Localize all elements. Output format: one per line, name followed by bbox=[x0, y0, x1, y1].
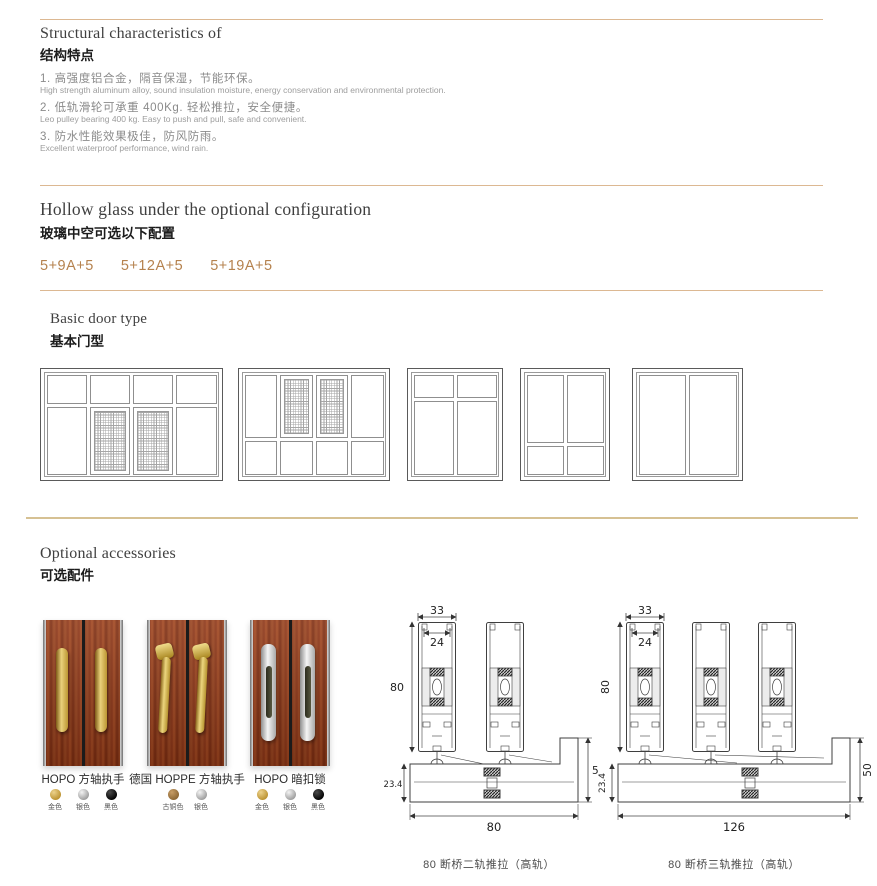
structural-item-3-en: Excellent waterproof performance, wind r… bbox=[40, 143, 208, 153]
door-panel bbox=[351, 441, 384, 475]
color-option: 金色 bbox=[45, 789, 65, 812]
door-panel bbox=[245, 441, 278, 475]
divider bbox=[40, 19, 823, 20]
color-option: 黑色 bbox=[101, 789, 121, 812]
door-frame bbox=[242, 372, 386, 477]
structural-item-2-cn: 2. 低轨滑轮可承重 400Kg. 轻松推拉，安全便捷。 bbox=[40, 99, 308, 115]
gold-swatch bbox=[257, 789, 268, 800]
glass-options: 5+9A+5 5+12A+5 5+19A+5 bbox=[40, 258, 273, 274]
door-seam bbox=[186, 620, 189, 766]
door-type-title-cn: 基本门型 bbox=[50, 330, 104, 350]
dim-top: 33 bbox=[430, 606, 444, 617]
dim-glass: 24 bbox=[430, 636, 444, 649]
panel-edge bbox=[147, 620, 150, 766]
black-swatch bbox=[313, 789, 324, 800]
lock-slot bbox=[305, 666, 311, 718]
door-panel bbox=[133, 375, 173, 404]
swatch-label: 古铜色 bbox=[163, 802, 184, 812]
structural-item-1-cn: 1. 高强度铝合金，隔音保湿，节能环保。 bbox=[40, 70, 260, 86]
color-option: 黑色 bbox=[308, 789, 328, 812]
dim-sill: 23.4 bbox=[384, 780, 402, 790]
dim-top: 33 bbox=[638, 606, 652, 617]
dim-width: 126 bbox=[723, 820, 745, 834]
profile-caption: 80 断桥三轨推拉（高轨） bbox=[644, 856, 824, 872]
color-option: 古铜色 bbox=[163, 789, 183, 812]
door-panel bbox=[567, 446, 604, 475]
swatch-label: 黑色 bbox=[311, 802, 325, 812]
color-options: 金色 银色 黑色 bbox=[45, 789, 121, 812]
panel-edge bbox=[250, 620, 253, 766]
gold-pull-handle bbox=[56, 648, 68, 732]
structural-item-1-en: High strength aluminum alloy, sound insu… bbox=[40, 85, 446, 95]
door-diagram-2 bbox=[238, 368, 390, 481]
swatch-label: 金色 bbox=[255, 802, 269, 812]
door-frame bbox=[636, 372, 739, 477]
door-frame bbox=[524, 372, 606, 477]
dim-glass: 24 bbox=[638, 636, 652, 649]
gold-swatch bbox=[50, 789, 61, 800]
profile-drawing-3-track: 33 24 80 23.4 50 126 bbox=[592, 606, 877, 846]
silver-swatch bbox=[285, 789, 296, 800]
door-panel bbox=[567, 375, 604, 443]
color-option: 银色 bbox=[280, 789, 300, 812]
flush-lock bbox=[300, 644, 315, 741]
door-panel bbox=[457, 401, 497, 475]
door-type-title-en: Basic door type bbox=[50, 311, 147, 328]
door-row bbox=[45, 373, 218, 405]
door-panel bbox=[90, 375, 130, 404]
product-caption: HOPO 暗扣锁 bbox=[215, 771, 365, 787]
catalog-page: Structural characteristics of 结构特点 1. 高强… bbox=[0, 0, 877, 886]
profile-drawing-2-track: 33 24 80 23.4 50 80 bbox=[384, 606, 599, 846]
door-row bbox=[243, 439, 385, 476]
door-panel-screen bbox=[133, 407, 173, 475]
door-panel bbox=[527, 375, 564, 443]
screen-mesh bbox=[284, 379, 309, 434]
door-panel bbox=[414, 401, 454, 475]
door-panel-screen bbox=[280, 375, 313, 438]
divider bbox=[40, 290, 823, 291]
lever-grip bbox=[195, 657, 208, 733]
color-option: 金色 bbox=[252, 789, 272, 812]
door-row bbox=[637, 373, 738, 476]
swatch-label: 银色 bbox=[76, 802, 90, 812]
color-option: 银色 bbox=[73, 789, 93, 812]
panel-edge bbox=[120, 620, 123, 766]
divider bbox=[40, 185, 823, 186]
door-diagram-1 bbox=[40, 368, 223, 481]
bronze-swatch bbox=[168, 789, 179, 800]
accessories-title-en: Optional accessories bbox=[40, 545, 176, 563]
door-diagram-5 bbox=[632, 368, 743, 481]
silver-swatch bbox=[196, 789, 207, 800]
dim-sill: 23.4 bbox=[598, 773, 608, 793]
door-row bbox=[45, 405, 218, 476]
door-seam bbox=[289, 620, 292, 766]
flush-lock bbox=[261, 644, 276, 741]
color-options: 古铜色 银色 bbox=[163, 789, 211, 812]
door-panel bbox=[280, 441, 313, 475]
door-panel bbox=[245, 375, 278, 438]
structural-title-cn: 结构特点 bbox=[40, 44, 94, 64]
door-panel bbox=[639, 375, 687, 475]
lock-slot bbox=[266, 666, 272, 718]
screen-mesh bbox=[320, 379, 345, 434]
swatch-label: 银色 bbox=[283, 802, 297, 812]
door-panel bbox=[176, 407, 216, 475]
panel-edge bbox=[224, 620, 227, 766]
door-row bbox=[412, 373, 498, 399]
screen-mesh bbox=[94, 411, 126, 471]
door-panel-screen bbox=[316, 375, 349, 438]
gold-pull-handle bbox=[95, 648, 107, 732]
structural-title-en: Structural characteristics of bbox=[40, 25, 222, 43]
door-panel bbox=[527, 446, 564, 475]
gold-lever-handle bbox=[157, 644, 174, 736]
dim-right: 50 bbox=[862, 763, 874, 776]
door-diagram-4 bbox=[520, 368, 610, 481]
silver-swatch bbox=[78, 789, 89, 800]
product-photo-hopo-flush-lock bbox=[250, 620, 330, 766]
glass-option: 5+12A+5 bbox=[121, 258, 183, 274]
screen-mesh bbox=[137, 411, 169, 471]
panel-edge bbox=[43, 620, 46, 766]
dim-width: 80 bbox=[487, 820, 502, 834]
door-panel bbox=[351, 375, 384, 438]
door-panel bbox=[316, 441, 349, 475]
gold-lever-handle bbox=[194, 644, 211, 736]
door-panel bbox=[689, 375, 737, 475]
door-diagram-3 bbox=[407, 368, 503, 481]
door-row bbox=[412, 399, 498, 476]
dim-height: 80 bbox=[599, 680, 612, 694]
door-panel bbox=[47, 407, 87, 475]
swatch-label: 金色 bbox=[48, 802, 62, 812]
color-options: 金色 银色 黑色 bbox=[252, 789, 328, 812]
glass-title-en: Hollow glass under the optional configur… bbox=[40, 199, 371, 220]
door-panel bbox=[47, 375, 87, 404]
door-row bbox=[525, 373, 605, 444]
door-row bbox=[243, 373, 385, 439]
glass-title-cn: 玻璃中空可选以下配置 bbox=[40, 222, 175, 242]
door-frame bbox=[44, 372, 219, 477]
product-photo-hopo-handle bbox=[43, 620, 123, 766]
accessories-title-cn: 可选配件 bbox=[40, 564, 94, 584]
structural-item-3-cn: 3. 防水性能效果极佳，防风防雨。 bbox=[40, 128, 224, 144]
profile-caption: 80 断桥二轨推拉（高轨） bbox=[399, 856, 579, 872]
color-option: 银色 bbox=[191, 789, 211, 812]
divider-thick bbox=[26, 517, 858, 519]
swatch-label: 黑色 bbox=[104, 802, 118, 812]
door-row bbox=[525, 444, 605, 476]
door-seam bbox=[82, 620, 85, 766]
panel-edge bbox=[327, 620, 330, 766]
product-photo-hoppe-handle bbox=[147, 620, 227, 766]
door-panel-screen bbox=[90, 407, 130, 475]
door-frame bbox=[411, 372, 499, 477]
black-swatch bbox=[106, 789, 117, 800]
door-panel bbox=[457, 375, 497, 398]
glass-option: 5+9A+5 bbox=[40, 258, 94, 274]
dim-height: 80 bbox=[390, 681, 404, 694]
door-panel bbox=[414, 375, 454, 398]
door-panel bbox=[176, 375, 216, 404]
glass-option: 5+19A+5 bbox=[210, 258, 272, 274]
lever-grip bbox=[158, 657, 171, 733]
swatch-label: 银色 bbox=[194, 802, 208, 812]
structural-item-2-en: Leo pulley bearing 400 kg. Easy to push … bbox=[40, 114, 307, 124]
